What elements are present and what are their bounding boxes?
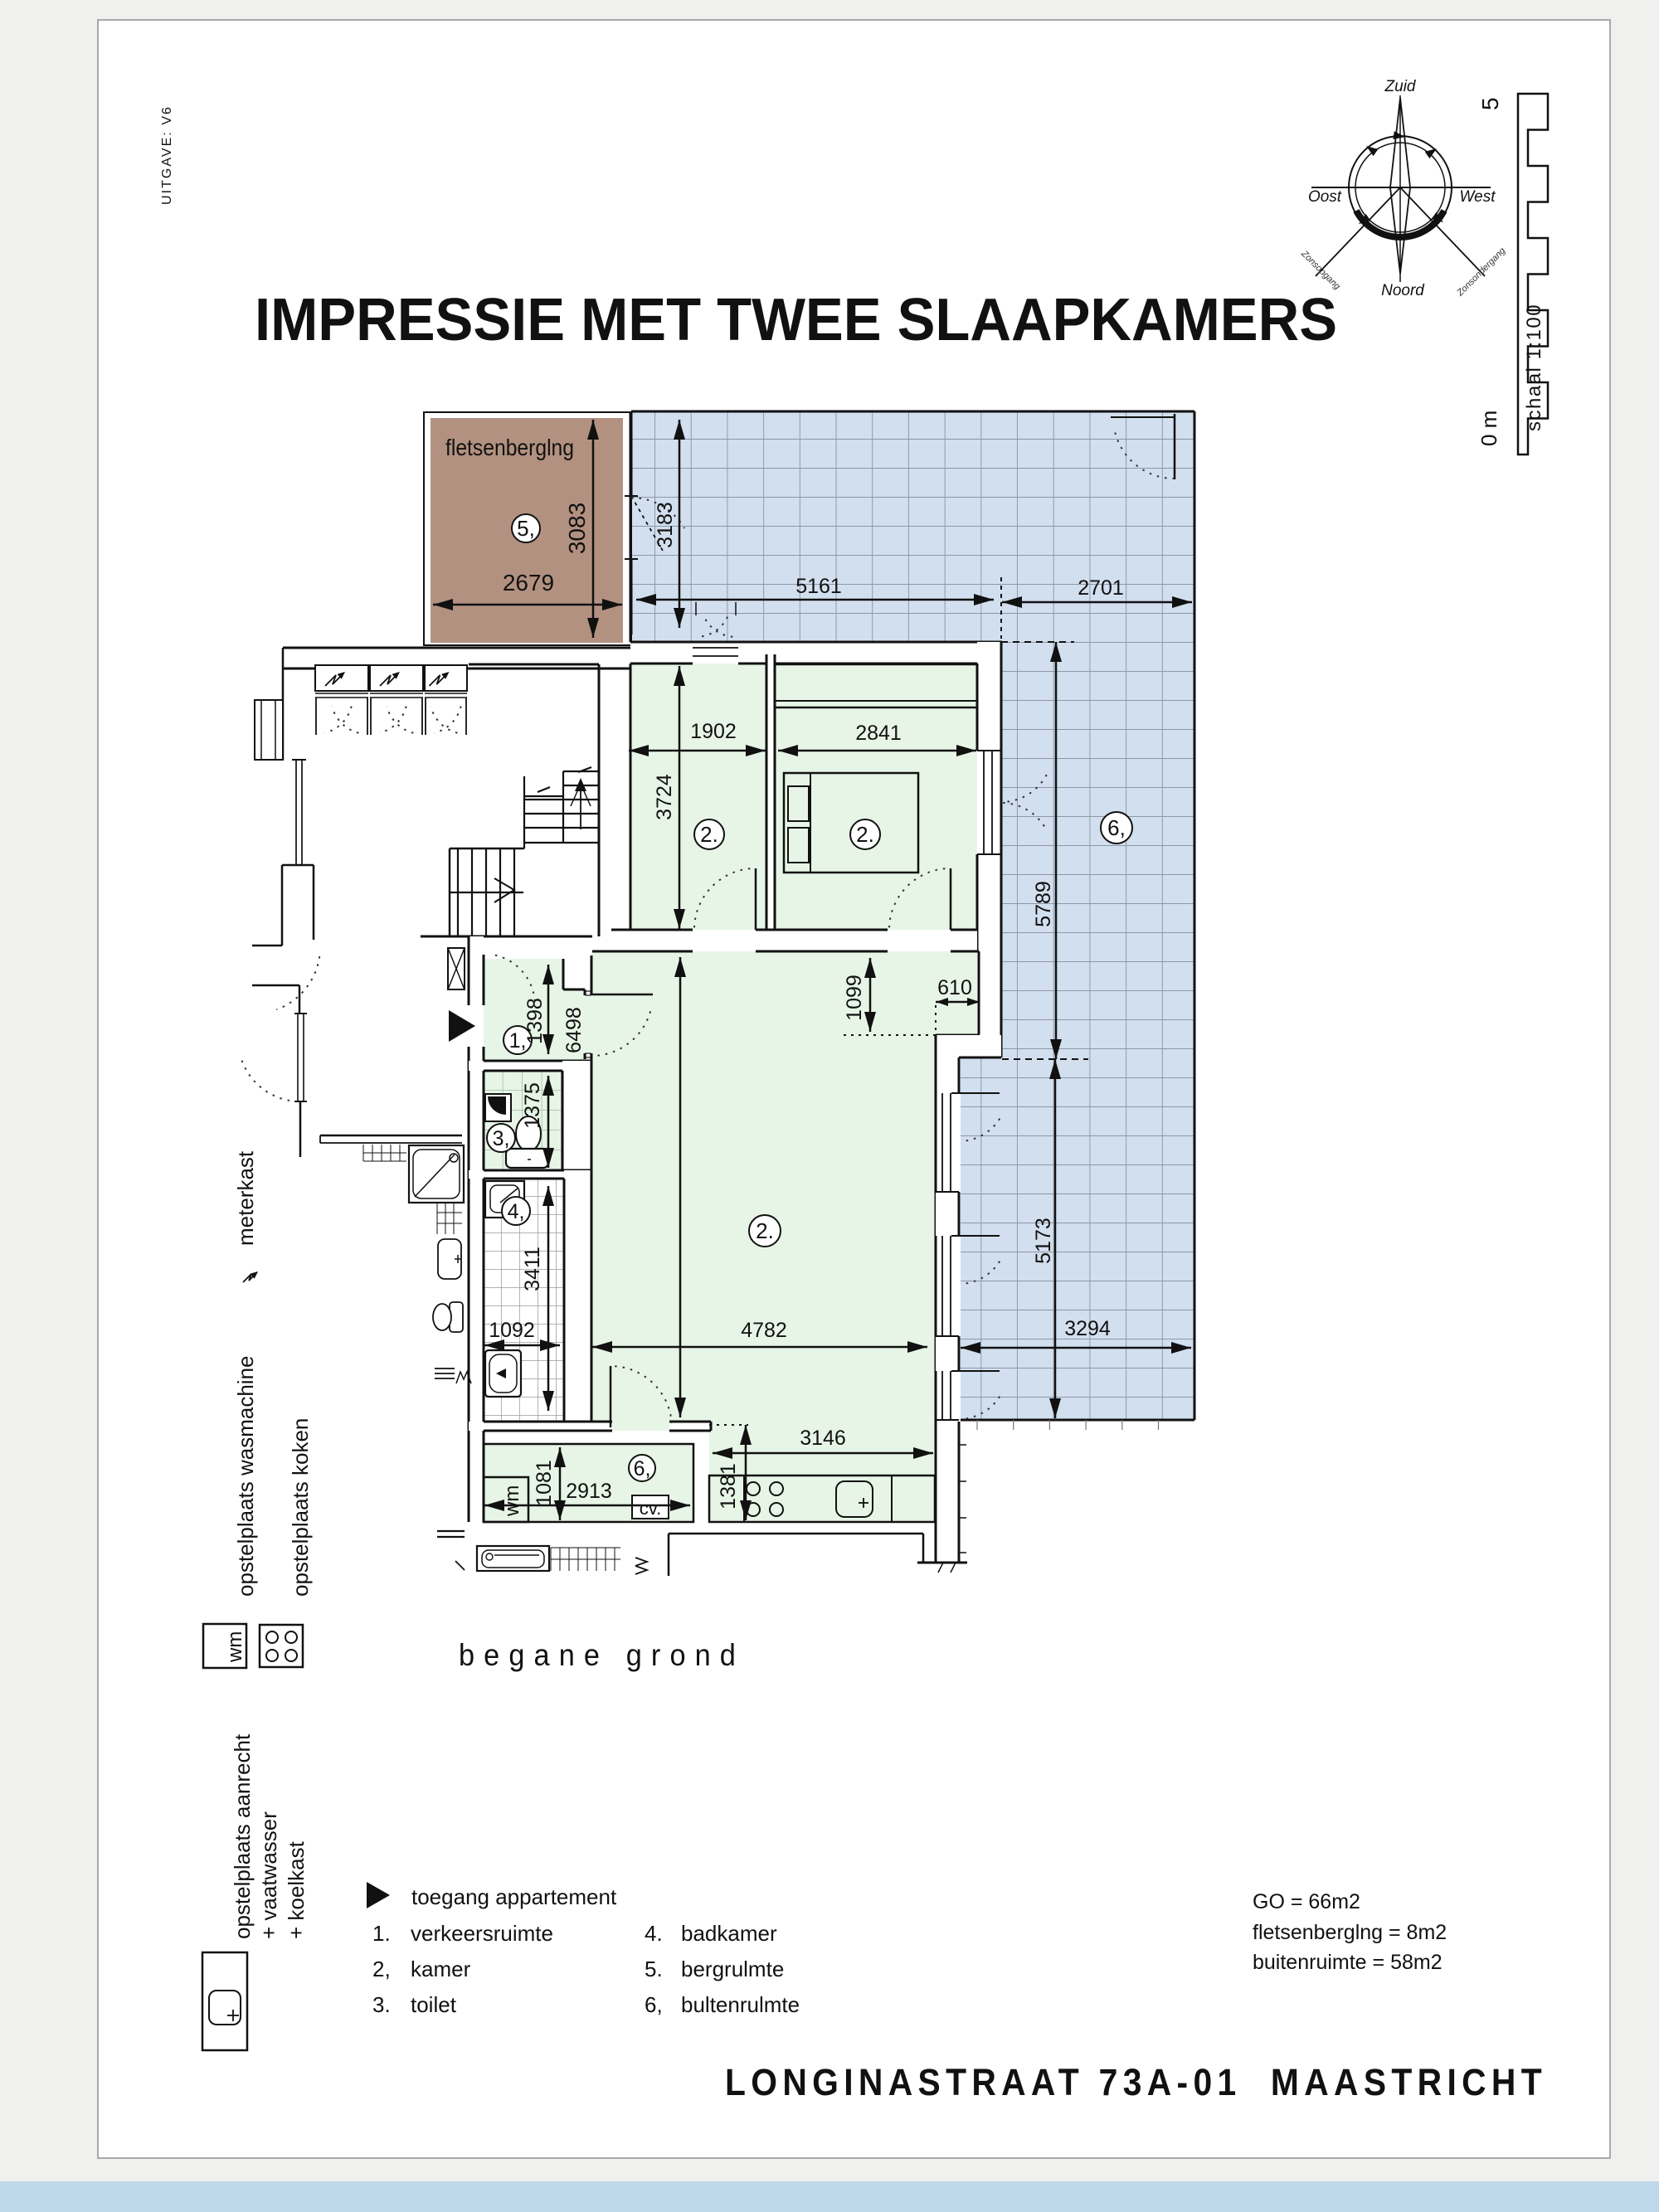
- svg-text:610: 610: [937, 976, 972, 999]
- svg-text:3411: 3411: [521, 1247, 544, 1291]
- svg-text:bergrulmte: bergrulmte: [681, 1957, 784, 1981]
- svg-text:2,: 2,: [372, 1957, 391, 1981]
- svg-text:buitenruimte = 58m2: buitenruimte = 58m2: [1253, 1951, 1443, 1974]
- svg-text:4782: 4782: [741, 1319, 787, 1342]
- svg-text:Zuid: Zuid: [1384, 78, 1417, 95]
- svg-text:5173: 5173: [1032, 1218, 1055, 1264]
- svg-text:Noord: Noord: [1381, 282, 1425, 299]
- svg-text:fletsenberglng: fletsenberglng: [445, 435, 574, 460]
- svg-text:verkeersruimte: verkeersruimte: [411, 1921, 553, 1946]
- svg-text:6,: 6,: [1107, 815, 1126, 840]
- svg-text:opstelplaats aanrecht: opstelplaats aanrecht: [230, 1733, 255, 1939]
- svg-text:fletsenberglng = 8m2: fletsenberglng = 8m2: [1253, 1921, 1447, 1944]
- svg-text:opstelplaats koken: opstelplaats koken: [288, 1418, 313, 1597]
- svg-text:wm: wm: [501, 1485, 523, 1517]
- svg-text:2841: 2841: [855, 722, 902, 745]
- svg-text:3146: 3146: [800, 1427, 846, 1450]
- svg-text:1375: 1375: [521, 1082, 544, 1129]
- svg-text:begane grond: begane grond: [459, 1638, 745, 1672]
- svg-text:5161: 5161: [795, 575, 842, 598]
- svg-text:wm: wm: [224, 1631, 246, 1663]
- svg-text:6,: 6,: [645, 1992, 663, 2017]
- svg-text:toegang appartement: toegang appartement: [411, 1884, 617, 1909]
- svg-text:1099: 1099: [843, 975, 866, 1021]
- svg-text:1092: 1092: [489, 1319, 535, 1342]
- svg-text:meterkast: meterkast: [233, 1150, 258, 1246]
- svg-text:UITGAVE: V6: UITGAVE: V6: [160, 105, 174, 205]
- svg-text:5.: 5.: [645, 1957, 663, 1981]
- svg-text:5,: 5,: [517, 516, 535, 541]
- svg-text:2679: 2679: [503, 570, 554, 596]
- svg-text:kamer: kamer: [411, 1957, 471, 1981]
- svg-text:3,: 3,: [493, 1127, 510, 1150]
- svg-text:schaal 1:100: schaal 1:100: [1523, 304, 1545, 431]
- svg-text:1381: 1381: [717, 1463, 740, 1510]
- svg-text:bultenrulmte: bultenrulmte: [681, 1992, 800, 2017]
- svg-text:opstelplaats wasmachine: opstelplaats wasmachine: [233, 1356, 258, 1597]
- svg-text:1902: 1902: [690, 720, 737, 743]
- svg-text:3294: 3294: [1064, 1317, 1111, 1340]
- svg-text:GO = 66m2: GO = 66m2: [1253, 1890, 1360, 1913]
- svg-text:1398: 1398: [523, 998, 547, 1044]
- svg-text:5789: 5789: [1032, 881, 1055, 927]
- svg-text:3183: 3183: [654, 502, 677, 548]
- svg-text:toilet: toilet: [411, 1992, 457, 2017]
- svg-text:1081: 1081: [533, 1460, 556, 1506]
- svg-text:0 m: 0 m: [1477, 411, 1501, 446]
- svg-text:2.: 2.: [700, 822, 718, 847]
- svg-text:2.: 2.: [756, 1218, 774, 1243]
- svg-text:1.: 1.: [372, 1921, 391, 1946]
- svg-text:cv.: cv.: [640, 1498, 661, 1519]
- svg-text:3083: 3083: [564, 503, 590, 554]
- svg-text:2913: 2913: [566, 1480, 612, 1503]
- svg-text:6,: 6,: [634, 1457, 651, 1480]
- svg-text:IMPRESSIE MET TWEE SLAAPKAMERS: IMPRESSIE MET TWEE SLAAPKAMERS: [255, 287, 1337, 353]
- svg-text:+ vaatwasser: + vaatwasser: [256, 1811, 281, 1939]
- svg-text:badkamer: badkamer: [681, 1921, 777, 1946]
- svg-text:West: West: [1460, 188, 1496, 206]
- svg-text:+ koelkast: + koelkast: [284, 1840, 309, 1939]
- svg-text:3724: 3724: [653, 774, 676, 820]
- svg-text:6498: 6498: [562, 1007, 586, 1053]
- svg-text:Oost: Oost: [1308, 188, 1342, 206]
- svg-text:4,: 4,: [508, 1200, 525, 1223]
- svg-text:2.: 2.: [856, 822, 874, 847]
- svg-text:LONGINASTRAAT 73A-01 MAASTRIC: LONGINASTRAAT 73A-01 MAASTRICHT: [725, 2061, 1547, 2103]
- svg-text:2701: 2701: [1078, 576, 1124, 600]
- svg-text:4.: 4.: [645, 1921, 663, 1946]
- svg-text:3.: 3.: [372, 1992, 391, 2017]
- svg-text:5: 5: [1477, 97, 1503, 110]
